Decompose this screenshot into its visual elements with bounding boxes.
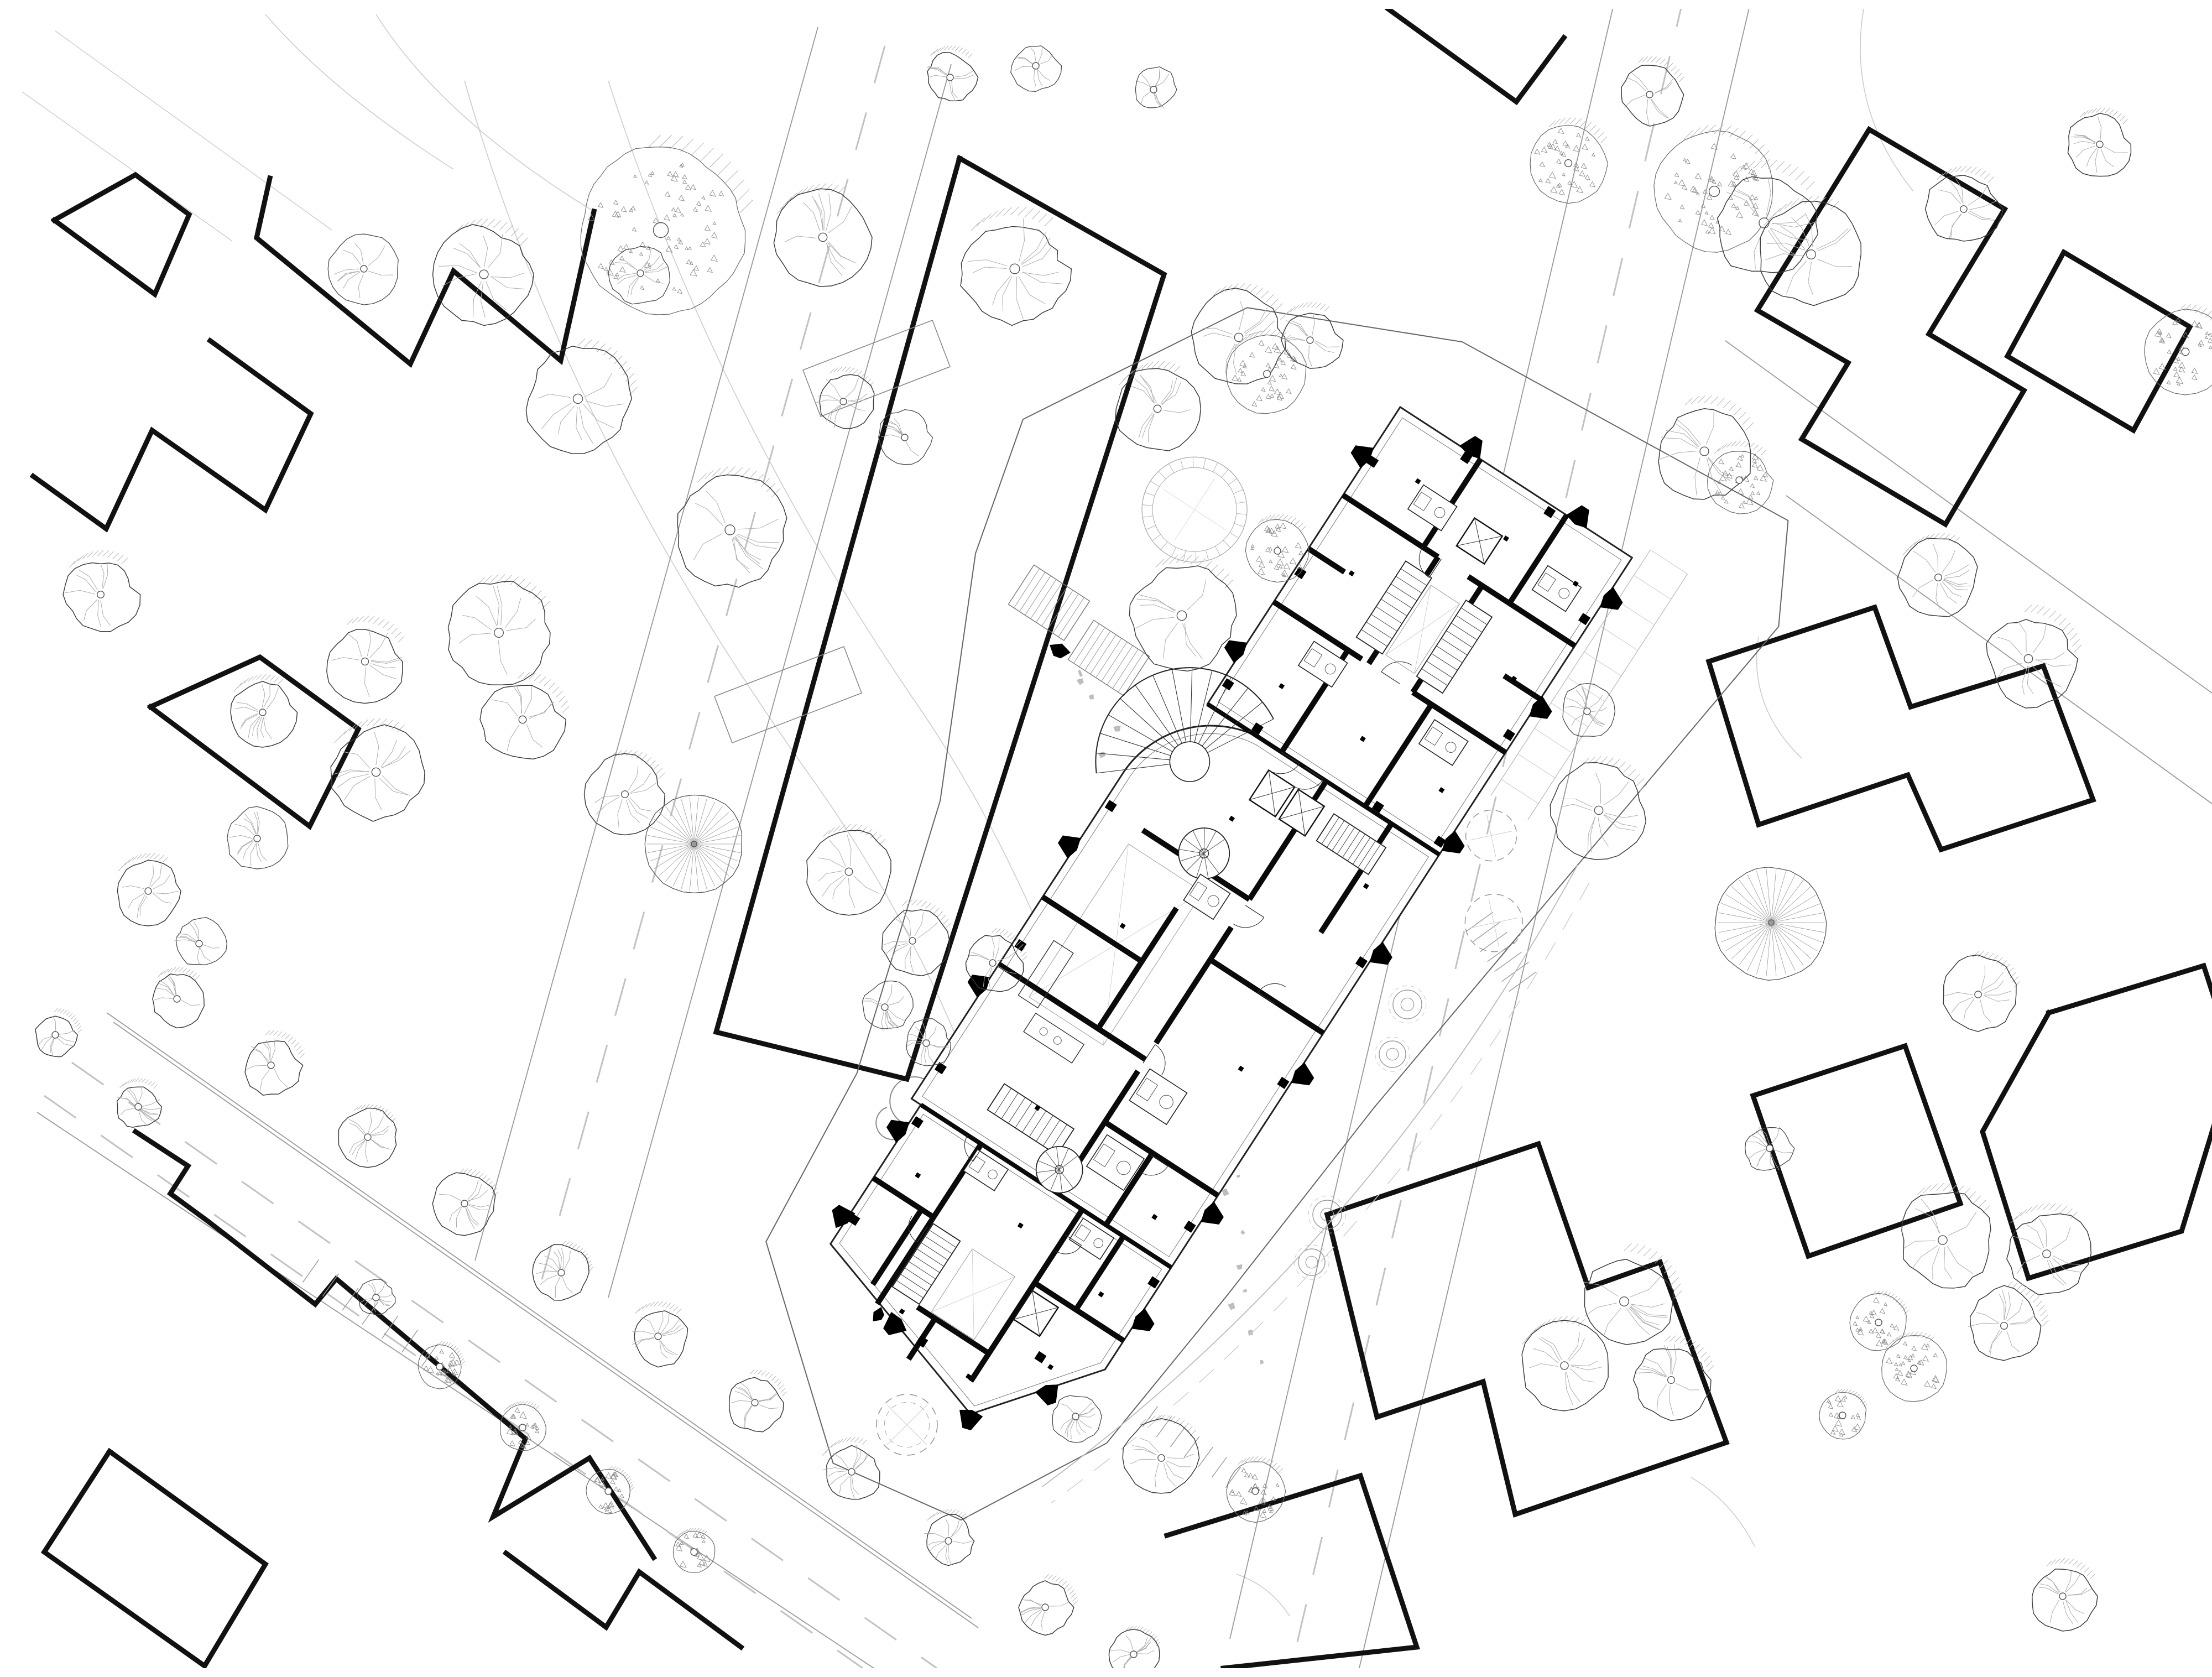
- site-plan-canvas: [22, 9, 2212, 1668]
- site-plan-figure: Architectural site plan with detailed gr…: [22, 9, 2212, 1668]
